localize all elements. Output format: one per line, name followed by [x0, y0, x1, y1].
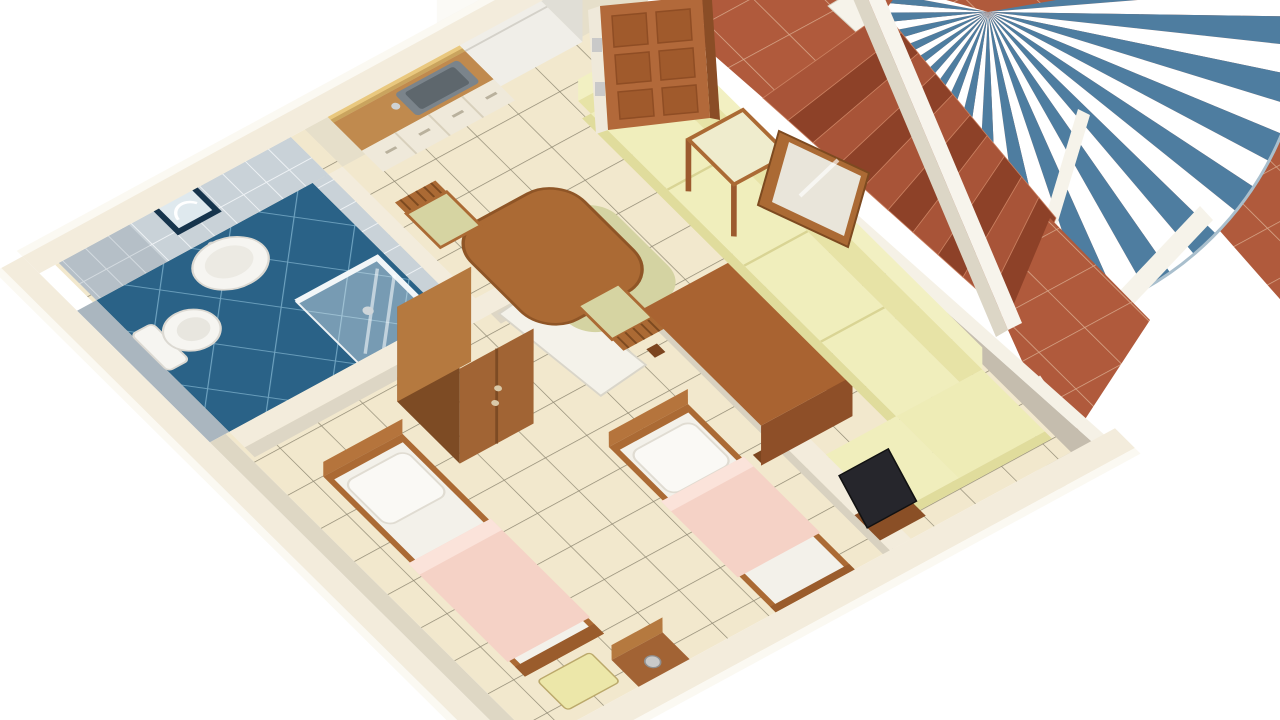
door-panel — [656, 9, 692, 43]
door-panel — [612, 13, 648, 47]
door-panel — [618, 89, 654, 119]
apartment-floor-plan-3d — [0, 0, 1280, 720]
door-hinge — [595, 82, 605, 96]
floor-plan-canvas — [0, 0, 1280, 720]
door-panel — [659, 48, 695, 80]
door-hinge — [592, 38, 602, 52]
entrance-door — [588, 0, 720, 134]
door-panel — [662, 85, 698, 115]
door-panel — [615, 52, 651, 84]
